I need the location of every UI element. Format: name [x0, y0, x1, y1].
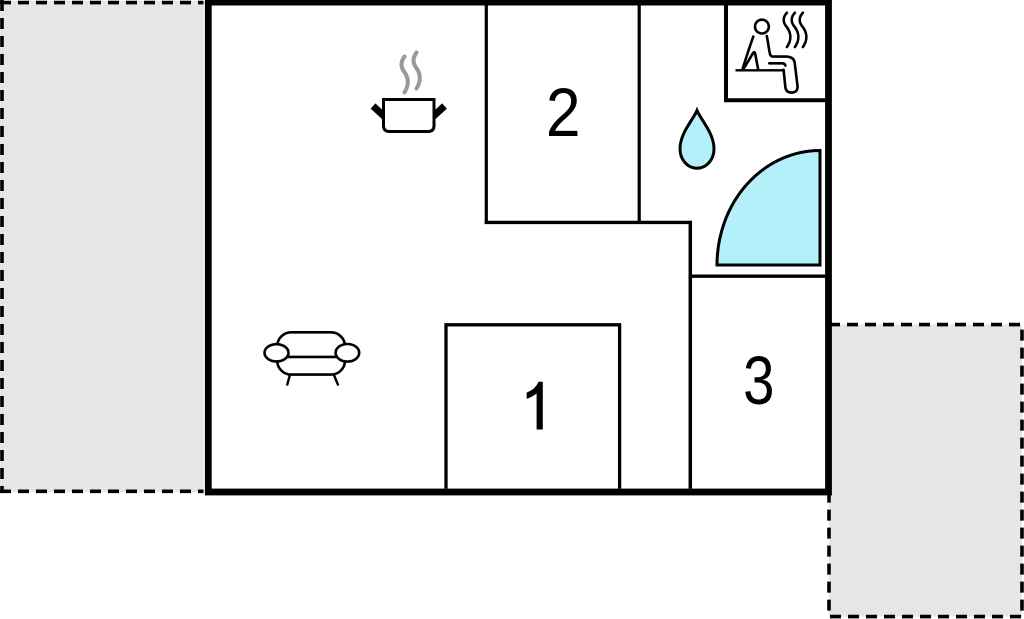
- svg-text:2: 2: [546, 74, 581, 151]
- svg-text:3: 3: [743, 342, 774, 419]
